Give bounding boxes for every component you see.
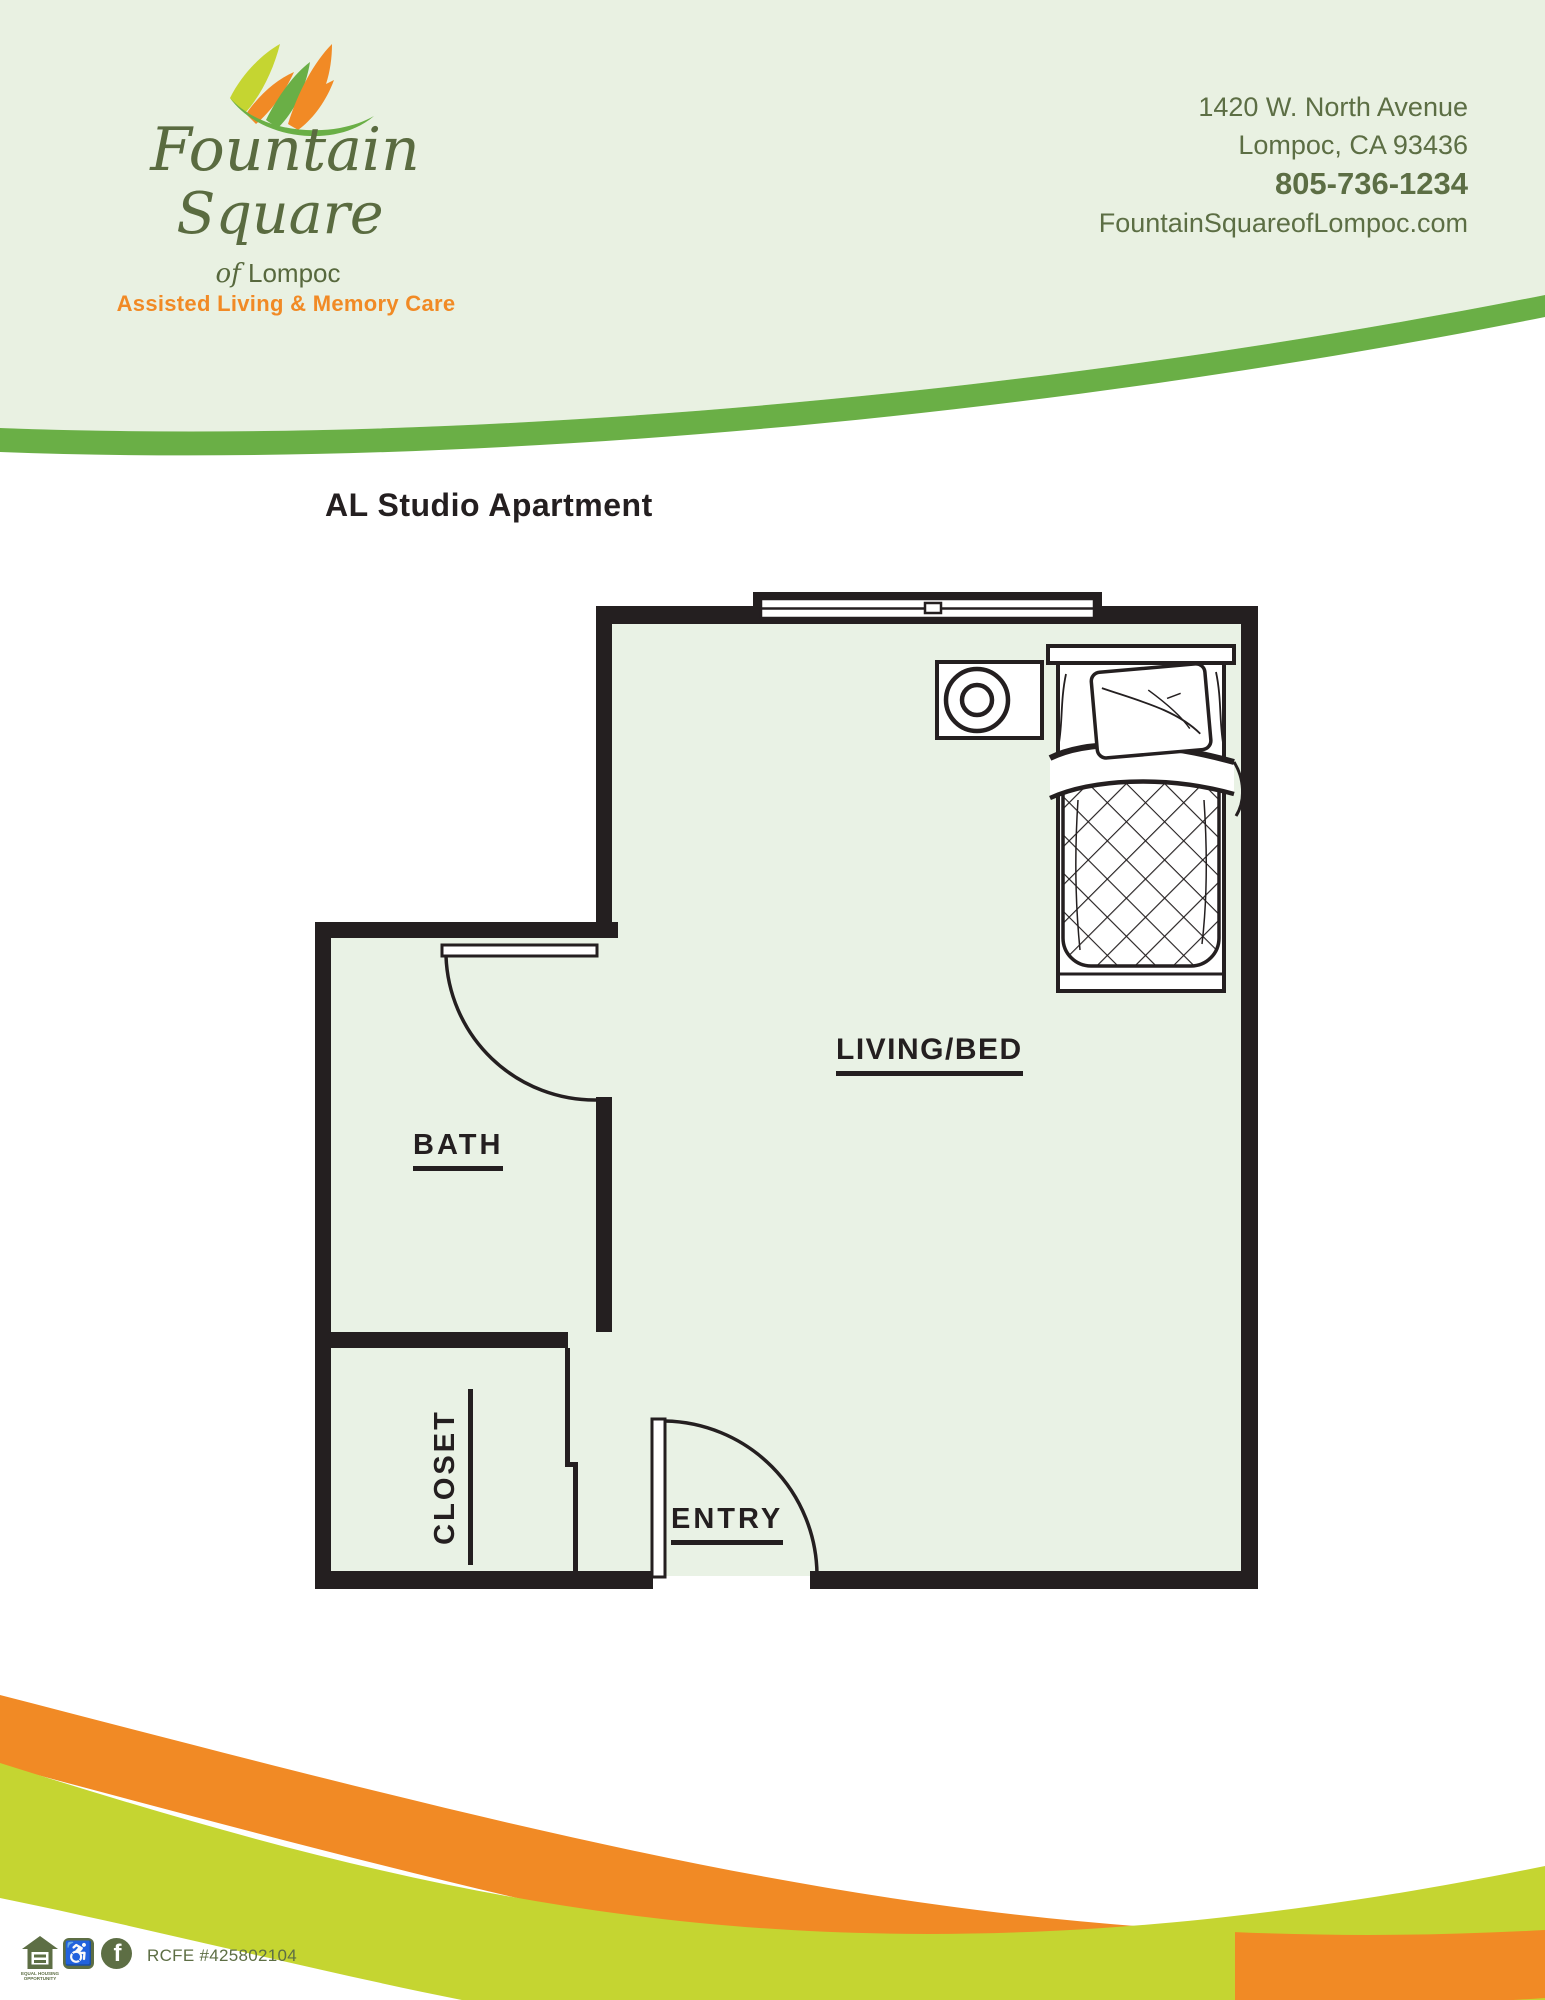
window-latch [925,603,941,613]
license-number: RCFE #425802104 [147,1946,297,1966]
wall-bath-right-lower [596,1097,612,1332]
footer-swoosh [0,1618,1545,2000]
room-label-bath: BATH [413,1131,503,1171]
facebook-icon: f [101,1938,132,1969]
nightstand-ring-inner [962,685,992,715]
room-label-living-bed: LIVING/BED [836,1035,1023,1076]
wall-bath-closet-divider [315,1332,568,1348]
eho-equals-bottom [34,1960,46,1963]
accessibility-icon: ♿ [63,1938,94,1969]
wall-wing-bottom [315,1571,653,1589]
wall-bottom-right [810,1571,1258,1589]
nightstand [937,662,1042,738]
partition-lower [573,1462,578,1572]
equal-housing-caption: EQUAL HOUSING OPPORTUNITY [17,1971,63,1981]
equal-housing-icon [22,1936,58,1970]
bed-quilt-hatch [1063,772,1219,966]
wall-wing-left [315,922,331,1589]
wall-bath-top [315,922,618,938]
pillow-shape [1091,663,1212,759]
bed [1048,646,1243,991]
brochure-page: Fountain Square of Lompoc Assisted Livin… [0,0,1545,2000]
entry-door-leaf [652,1419,665,1577]
wall-left-upper [596,606,612,938]
partition-upper [565,1348,570,1466]
window [753,592,1102,624]
bath-door-leaf [442,945,597,956]
wall-right [1241,606,1258,1589]
room-label-closet: CLOSET [431,1389,473,1565]
bed-headboard [1048,646,1234,663]
bed-pillow [1091,663,1212,759]
room-label-entry: ENTRY [671,1505,783,1545]
eho-equals-top [34,1955,46,1958]
